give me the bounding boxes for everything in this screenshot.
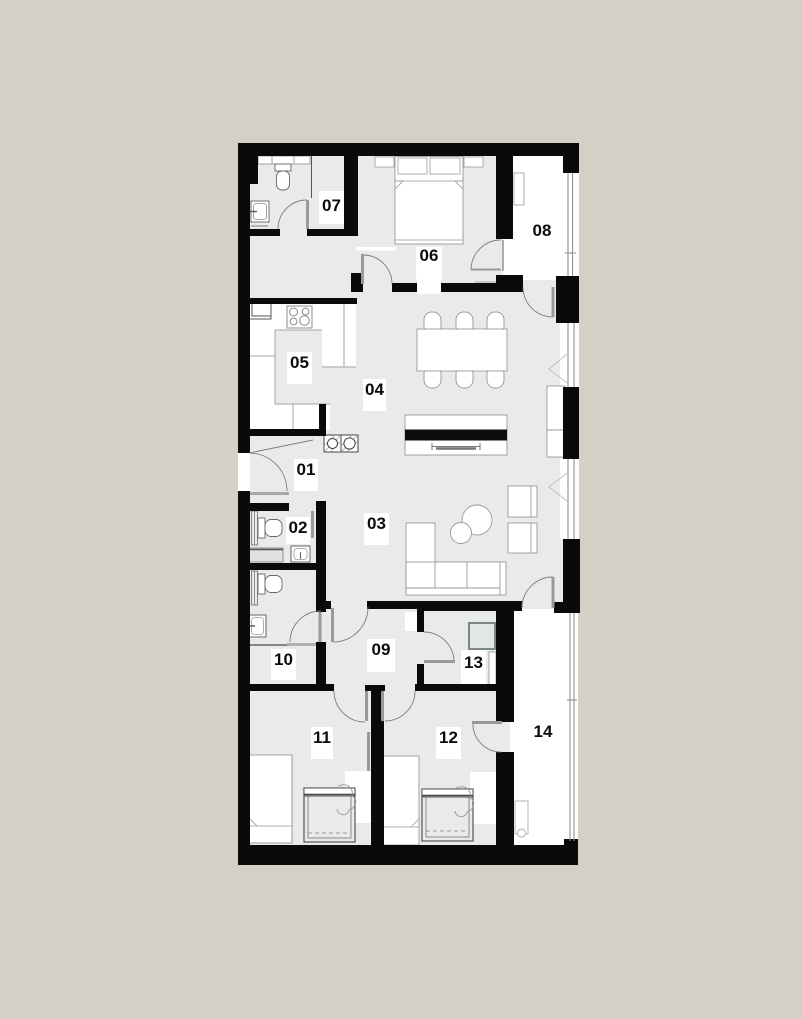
svg-text:03: 03 [367,514,386,533]
svg-text:10: 10 [274,650,293,669]
svg-text:09: 09 [372,640,391,659]
svg-text:04: 04 [365,380,384,399]
svg-text:11: 11 [313,728,331,747]
svg-text:05: 05 [290,353,309,372]
svg-text:07: 07 [322,196,341,215]
svg-text:12: 12 [439,728,458,747]
svg-text:01: 01 [297,460,316,479]
svg-text:02: 02 [289,518,308,537]
svg-text:14: 14 [534,722,553,741]
svg-text:06: 06 [420,246,439,265]
svg-text:13: 13 [464,653,483,672]
svg-text:08: 08 [533,221,552,240]
